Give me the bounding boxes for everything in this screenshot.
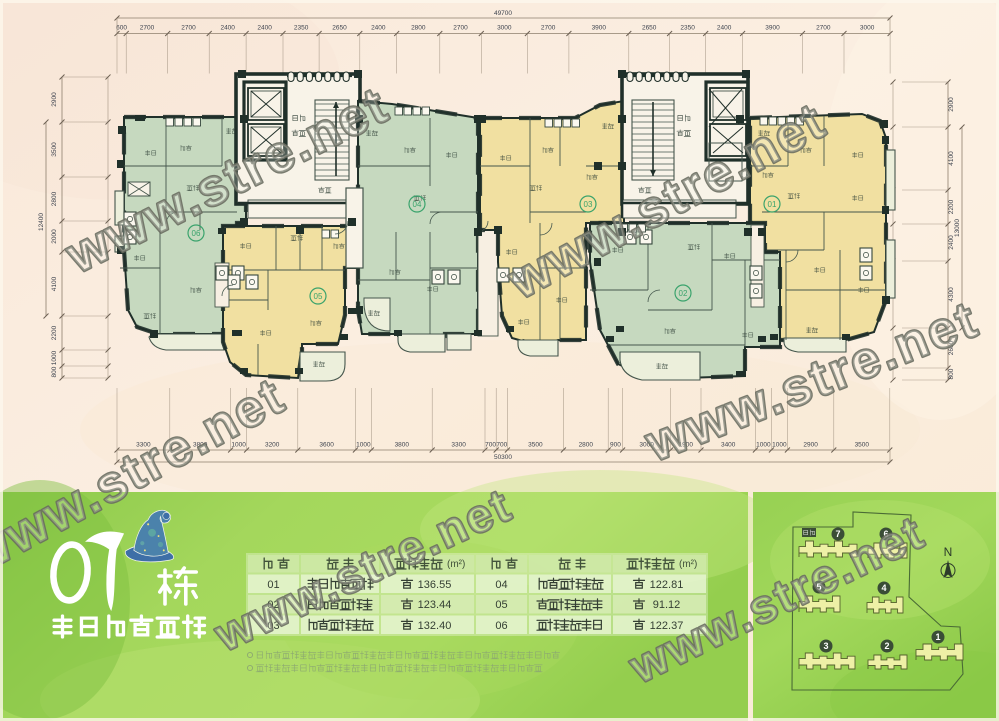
svg-text:3000: 3000 bbox=[497, 25, 512, 32]
svg-text:2: 2 bbox=[884, 641, 889, 651]
svg-text:1: 1 bbox=[935, 632, 940, 642]
svg-text:800: 800 bbox=[948, 368, 955, 379]
svg-text:2900: 2900 bbox=[948, 97, 955, 112]
svg-text:3000: 3000 bbox=[860, 25, 875, 32]
svg-text:91.12: 91.12 bbox=[653, 599, 681, 611]
svg-text:2700: 2700 bbox=[816, 25, 831, 32]
svg-text:2200: 2200 bbox=[948, 199, 955, 214]
svg-text:900: 900 bbox=[610, 442, 621, 449]
svg-text:2400: 2400 bbox=[257, 25, 272, 32]
svg-text:2350: 2350 bbox=[294, 25, 309, 32]
svg-text:2800: 2800 bbox=[411, 25, 426, 32]
svg-text:700: 700 bbox=[496, 442, 507, 449]
svg-text:3200: 3200 bbox=[265, 442, 280, 449]
svg-text:05: 05 bbox=[495, 599, 507, 611]
svg-text:03: 03 bbox=[584, 200, 593, 209]
svg-text:3500: 3500 bbox=[855, 442, 870, 449]
svg-text:2700: 2700 bbox=[140, 25, 155, 32]
svg-text:02: 02 bbox=[679, 289, 688, 298]
svg-text:1000: 1000 bbox=[772, 442, 787, 449]
svg-text:1000: 1000 bbox=[51, 350, 58, 365]
svg-text:2900: 2900 bbox=[51, 92, 58, 107]
svg-text:2800: 2800 bbox=[579, 442, 594, 449]
svg-text:132.40: 132.40 bbox=[418, 620, 452, 632]
svg-text:3: 3 bbox=[823, 641, 828, 651]
svg-text:600: 600 bbox=[116, 25, 127, 32]
svg-text:2400: 2400 bbox=[717, 25, 732, 32]
svg-text:3900: 3900 bbox=[592, 25, 607, 32]
svg-text:2700: 2700 bbox=[453, 25, 468, 32]
svg-text:123.44: 123.44 bbox=[418, 599, 452, 611]
svg-text:12400: 12400 bbox=[38, 213, 45, 231]
svg-text:800: 800 bbox=[51, 366, 58, 377]
svg-text:4100: 4100 bbox=[948, 151, 955, 166]
svg-text:3800: 3800 bbox=[395, 442, 410, 449]
svg-text:50300: 50300 bbox=[494, 454, 512, 461]
svg-text:4100: 4100 bbox=[51, 276, 58, 291]
svg-text:4: 4 bbox=[881, 583, 886, 593]
svg-text:136.55: 136.55 bbox=[418, 579, 452, 591]
svg-text:05: 05 bbox=[314, 292, 323, 301]
svg-text:2350: 2350 bbox=[680, 25, 695, 32]
svg-text:700: 700 bbox=[485, 442, 496, 449]
svg-text:122.81: 122.81 bbox=[650, 579, 684, 591]
svg-text:2700: 2700 bbox=[541, 25, 556, 32]
svg-text:(m²): (m²) bbox=[447, 559, 465, 570]
svg-text:2900: 2900 bbox=[803, 442, 818, 449]
svg-text:06: 06 bbox=[495, 620, 507, 632]
svg-text:N: N bbox=[944, 545, 953, 559]
svg-text:3600: 3600 bbox=[319, 442, 334, 449]
svg-text:49700: 49700 bbox=[494, 10, 512, 17]
svg-text:1000: 1000 bbox=[756, 442, 771, 449]
svg-text:2000: 2000 bbox=[51, 229, 58, 244]
svg-text:2400: 2400 bbox=[371, 25, 386, 32]
svg-text:06: 06 bbox=[192, 229, 201, 238]
svg-text:3500: 3500 bbox=[528, 442, 543, 449]
svg-text:(m²): (m²) bbox=[679, 559, 697, 570]
svg-text:2400: 2400 bbox=[220, 25, 235, 32]
svg-text:3900: 3900 bbox=[765, 25, 780, 32]
svg-text:2200: 2200 bbox=[51, 325, 58, 340]
svg-text:04: 04 bbox=[413, 200, 422, 209]
svg-text:2700: 2700 bbox=[181, 25, 196, 32]
svg-text:3300: 3300 bbox=[451, 442, 466, 449]
svg-text:01: 01 bbox=[768, 200, 777, 209]
svg-text:13000: 13000 bbox=[954, 219, 961, 237]
svg-text:04: 04 bbox=[495, 579, 507, 591]
svg-text:1000: 1000 bbox=[356, 442, 371, 449]
svg-text:3500: 3500 bbox=[51, 142, 58, 157]
svg-text:2650: 2650 bbox=[642, 25, 657, 32]
svg-text:2650: 2650 bbox=[332, 25, 347, 32]
svg-text:2800: 2800 bbox=[51, 191, 58, 206]
